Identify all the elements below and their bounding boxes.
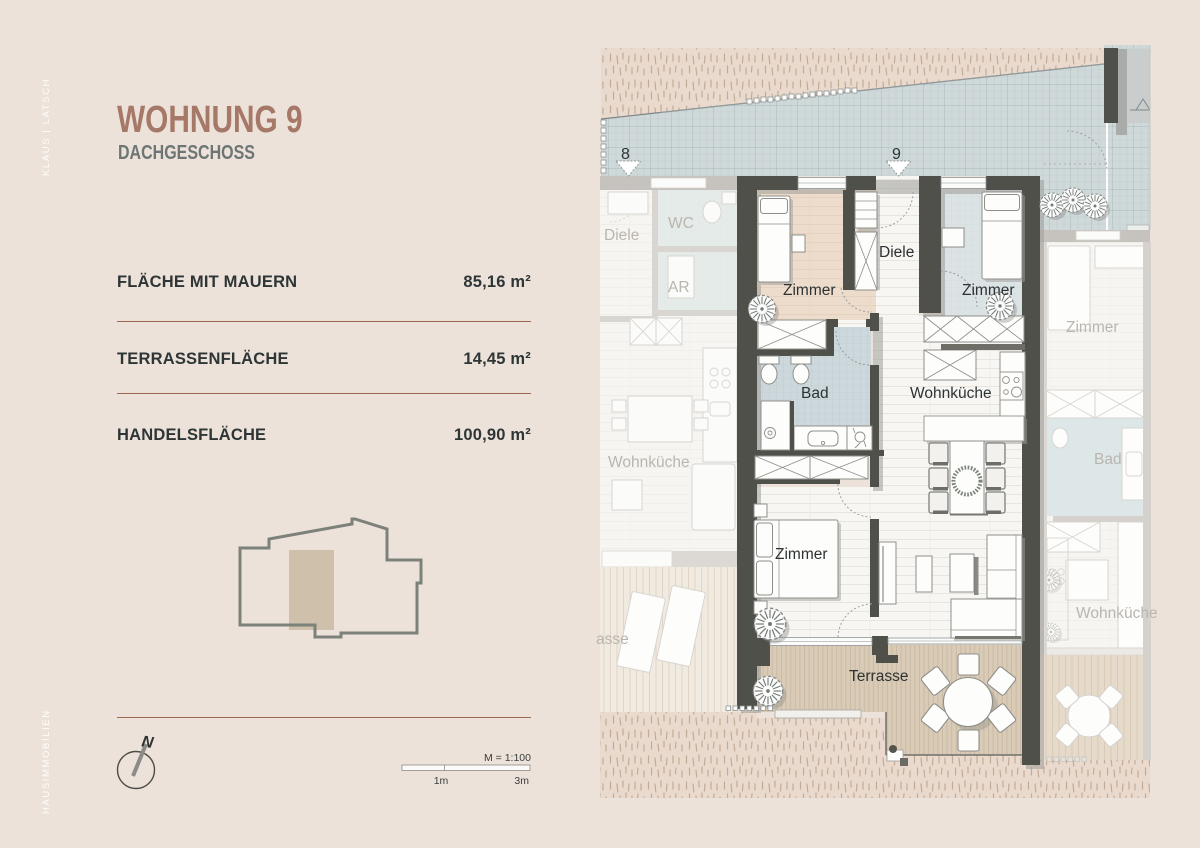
svg-text:Zimmer: Zimmer <box>1066 319 1119 336</box>
svg-text:Wohnküche: Wohnküche <box>1076 605 1158 622</box>
svg-text:Zimmer: Zimmer <box>962 282 1015 299</box>
svg-text:WC: WC <box>668 215 694 232</box>
svg-text:Terrasse: Terrasse <box>849 668 908 685</box>
svg-text:Diele: Diele <box>604 227 639 244</box>
svg-text:M = 1:100: M = 1:100 <box>484 752 531 764</box>
svg-text:Zimmer: Zimmer <box>783 282 836 299</box>
svg-text:Bad: Bad <box>801 385 829 402</box>
svg-text:Bad: Bad <box>1094 451 1122 468</box>
svg-text:1m: 1m <box>434 775 449 787</box>
svg-text:Wohnküche: Wohnküche <box>910 385 992 402</box>
svg-text:AR: AR <box>668 279 690 296</box>
svg-text:Diele: Diele <box>879 244 914 261</box>
svg-text:asse: asse <box>596 631 629 648</box>
svg-text:8: 8 <box>621 146 630 163</box>
svg-text:9: 9 <box>892 146 901 163</box>
svg-text:Zimmer: Zimmer <box>775 546 828 563</box>
svg-text:N: N <box>140 733 155 752</box>
svg-text:3m: 3m <box>514 775 529 787</box>
svg-text:Wohnküche: Wohnküche <box>608 454 690 471</box>
